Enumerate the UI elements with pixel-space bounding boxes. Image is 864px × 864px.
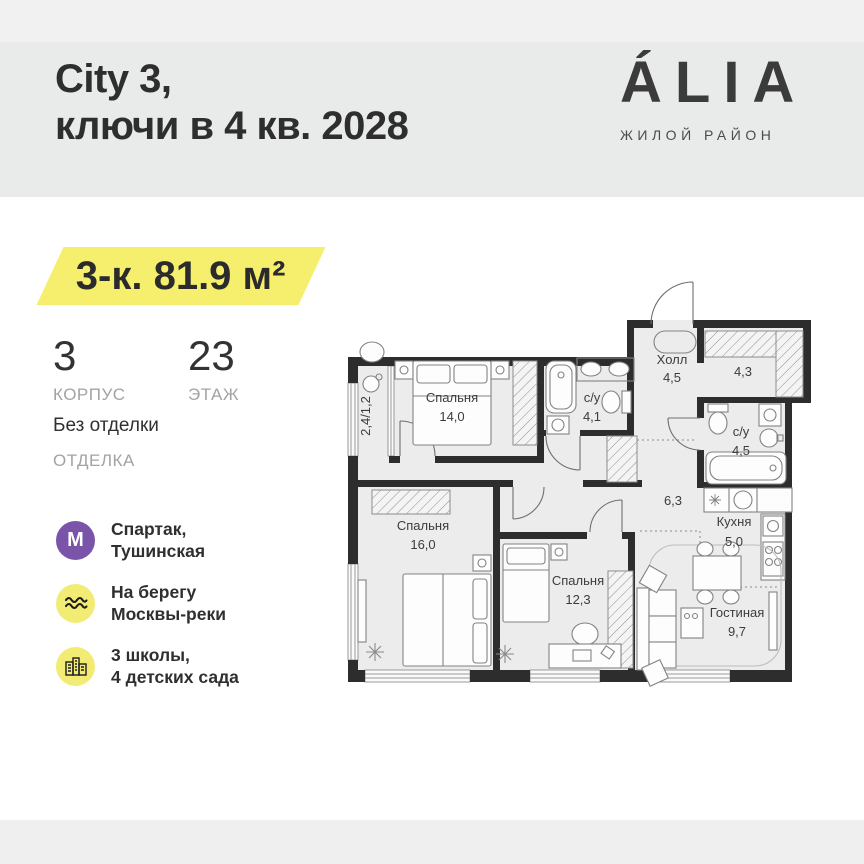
bathroom2-name: с/у <box>733 424 750 439</box>
toilet-icon <box>602 391 631 413</box>
radiator-icon <box>358 580 366 642</box>
corridor-area: 6,3 <box>664 493 682 508</box>
amenity-schools-line2: 4 детских сада <box>111 666 239 688</box>
toilet-icon <box>708 404 728 434</box>
amenities-list: М Спартак, Тушинская На берегу Москвы-ре… <box>56 518 239 707</box>
stat-building: 3 КОРПУС <box>53 334 188 405</box>
washer-icon <box>547 416 569 434</box>
header: City 3, ключи в 4 кв. 2028 ÁLIA ЖИЛОЙ РА… <box>0 42 864 197</box>
closet-area: 4,3 <box>734 364 752 379</box>
page-title: City 3, ключи в 4 кв. 2028 <box>55 56 408 150</box>
amenity-metro-line1: Спартак, <box>111 518 205 540</box>
area-badge: 3-к. 81.9 м² <box>36 247 325 305</box>
bathroom1-area: 4,1 <box>583 409 601 424</box>
island-icon <box>681 608 703 638</box>
floor-value: 23 <box>188 334 323 378</box>
top-strip <box>0 0 864 42</box>
amenity-river-line1: На берегу <box>111 581 226 603</box>
bedroom3-name: Спальня <box>552 573 604 588</box>
bedroom3-area: 12,3 <box>565 592 590 607</box>
school-buildings-icon <box>56 647 95 686</box>
entry-door <box>651 282 693 324</box>
finish-label: ОТДЕЛКА <box>53 451 159 471</box>
bedroom2-area: 16,0 <box>410 537 435 552</box>
amenity-metro-line2: Тушинская <box>111 540 205 562</box>
metro-letter: М <box>67 530 84 550</box>
floor-plan-svg: Спальня 14,0 с/у 4,1 Холл 4,5 4,3 с/у 4,… <box>345 278 815 710</box>
living-name: Гостиная <box>710 605 765 620</box>
balcony-area: 2,4/1,2 <box>358 396 373 436</box>
stats: 3 КОРПУС 23 ЭТАЖ <box>53 334 323 405</box>
bathtub-icon <box>546 361 576 413</box>
amenity-schools-line1: 3 школы, <box>111 644 239 666</box>
radiator-icon <box>769 592 777 650</box>
buildings-glyph <box>64 655 88 677</box>
stat-floor: 23 ЭТАЖ <box>188 334 323 405</box>
living-area: 9,7 <box>728 624 746 639</box>
bedroom2-name: Спальня <box>397 518 449 533</box>
bathroom2-area: 4,5 <box>732 443 750 458</box>
floor-label: ЭТАЖ <box>188 385 323 405</box>
floor-plan: Спальня 14,0 с/у 4,1 Холл 4,5 4,3 с/у 4,… <box>345 278 815 715</box>
brand-logo: ÁLIA ЖИЛОЙ РАЙОН <box>620 52 830 143</box>
bedroom1-name: Спальня <box>426 390 478 405</box>
area-badge-label: 3-к. 81.9 м² <box>76 254 286 299</box>
amenity-schools: 3 школы, 4 детских сада <box>56 644 239 688</box>
bathroom1-name: с/у <box>584 390 601 405</box>
footer-strip <box>0 820 864 864</box>
building-label: КОРПУС <box>53 385 188 405</box>
amenity-river-line2: Москвы-реки <box>111 603 226 625</box>
listing-image: { "header": { "title_line1": "City 3,", … <box>0 0 864 864</box>
finish-value: Без отделки <box>53 415 159 437</box>
amenity-schools-text: 3 школы, 4 детских сада <box>111 644 239 688</box>
hall-area: 4,5 <box>663 370 681 385</box>
waves-glyph <box>64 594 88 612</box>
washer-icon <box>759 404 781 426</box>
title-line-2: ключи в 4 кв. 2028 <box>55 103 408 150</box>
amenity-metro: М Спартак, Тушинская <box>56 518 239 562</box>
brand-subtitle: ЖИЛОЙ РАЙОН <box>620 127 830 143</box>
bedroom1-area: 14,0 <box>439 409 464 424</box>
title-line-1: City 3, <box>55 56 408 103</box>
amenity-river-text: На берегу Москвы-реки <box>111 581 226 625</box>
hall-name: Холл <box>657 352 688 367</box>
kitchen-name: Кухня <box>717 514 752 529</box>
river-waves-icon <box>56 584 95 623</box>
finish-info: Без отделки ОТДЕЛКА <box>53 415 159 471</box>
amenity-metro-text: Спартак, Тушинская <box>111 518 205 562</box>
kitchen-area: 5,0 <box>725 534 743 549</box>
metro-icon: М <box>56 521 95 560</box>
building-value: 3 <box>53 334 188 378</box>
brand-name: ÁLIA <box>620 52 830 114</box>
amenity-river: На берегу Москвы-реки <box>56 581 239 625</box>
